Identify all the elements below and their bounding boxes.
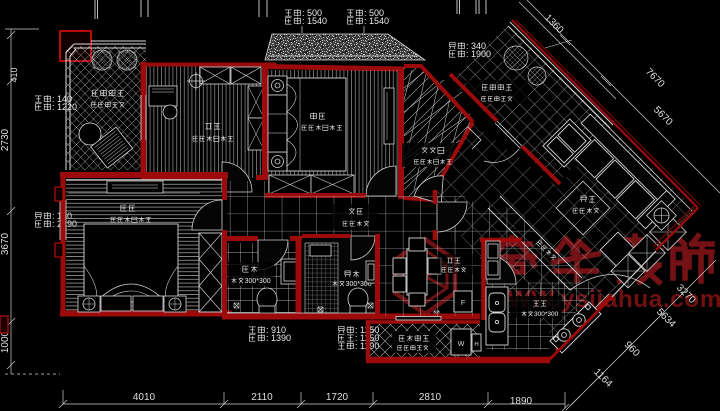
svg-text:300*300: 300*300 (245, 278, 271, 285)
svg-text:2730: 2730 (0, 128, 11, 151)
svg-text:1000: 1000 (0, 330, 11, 353)
svg-text:2810: 2810 (419, 392, 442, 403)
svg-text:300*300: 300*300 (534, 311, 559, 318)
svg-text:1890: 1890 (510, 396, 533, 407)
svg-text:4010: 4010 (133, 392, 156, 403)
svg-text:2110: 2110 (251, 392, 273, 403)
svg-text:F: F (461, 300, 465, 307)
svg-text:H: H (474, 342, 478, 348)
svg-text:410: 410 (9, 67, 19, 82)
svg-text:W: W (458, 341, 465, 348)
svg-text:3670: 3670 (0, 232, 11, 255)
svg-text:: 1540: : 1540 (364, 16, 389, 26)
svg-text:: 1390: : 1390 (266, 333, 291, 343)
svg-text:: 1540: : 1540 (302, 16, 327, 26)
svg-text:1720: 1720 (326, 392, 349, 403)
